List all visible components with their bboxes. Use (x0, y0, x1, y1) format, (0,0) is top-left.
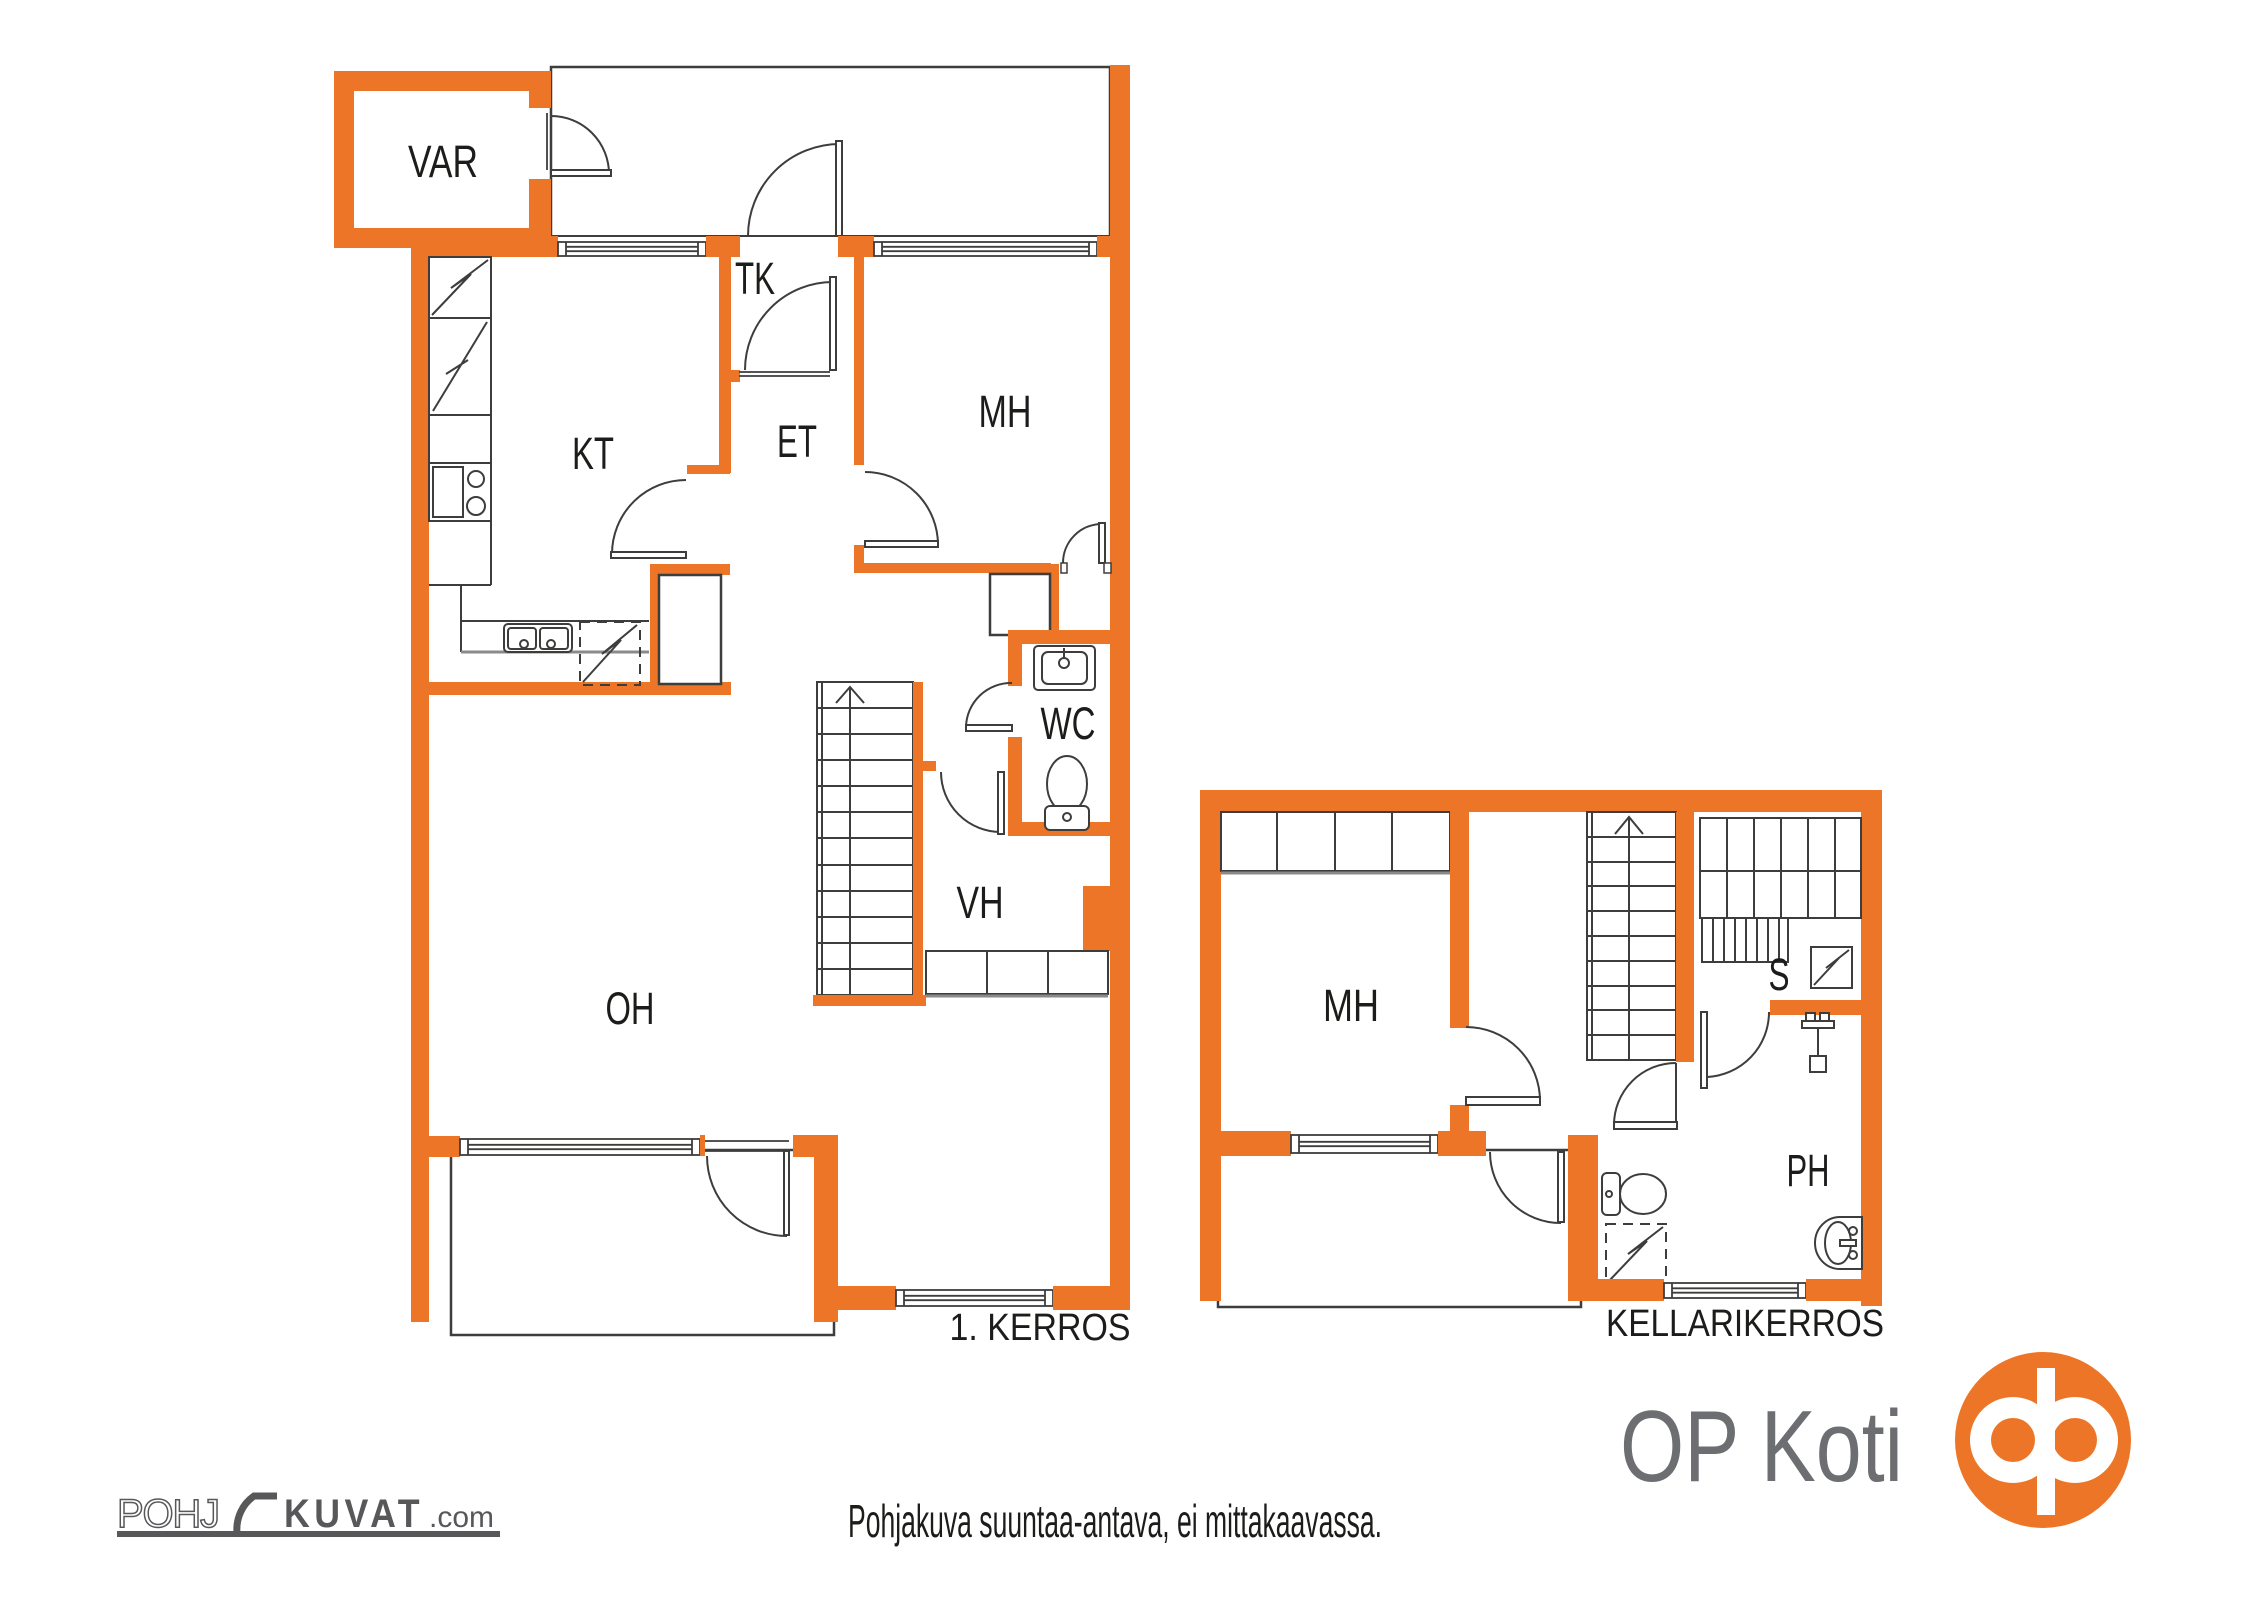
svg-text:ET: ET (777, 416, 817, 467)
svg-text:KUVAT: KUVAT (284, 1492, 424, 1536)
svg-text:MH: MH (1323, 980, 1379, 1031)
svg-text:MH: MH (979, 386, 1032, 437)
svg-text:PH: PH (1787, 1145, 1830, 1196)
svg-text:VH: VH (957, 877, 1004, 928)
svg-text:1. KERROS: 1. KERROS (950, 1307, 1131, 1349)
svg-text:KELLARIKERROS: KELLARIKERROS (1606, 1303, 1884, 1345)
svg-text:OH: OH (606, 983, 655, 1034)
svg-text:.com: .com (429, 1501, 494, 1534)
svg-text:POHJ: POHJ (117, 1492, 229, 1536)
svg-text:S: S (1769, 949, 1790, 1000)
svg-text:Pohjakuva suuntaa-antava, ei m: Pohjakuva suuntaa-antava, ei mittakaavas… (848, 1495, 1382, 1547)
svg-text:WC: WC (1041, 698, 1096, 749)
svg-text:VAR: VAR (408, 136, 478, 187)
svg-text:OP Koti: OP Koti (1620, 1391, 1903, 1503)
svg-text:TK: TK (735, 253, 775, 304)
svg-text:KT: KT (572, 428, 614, 479)
